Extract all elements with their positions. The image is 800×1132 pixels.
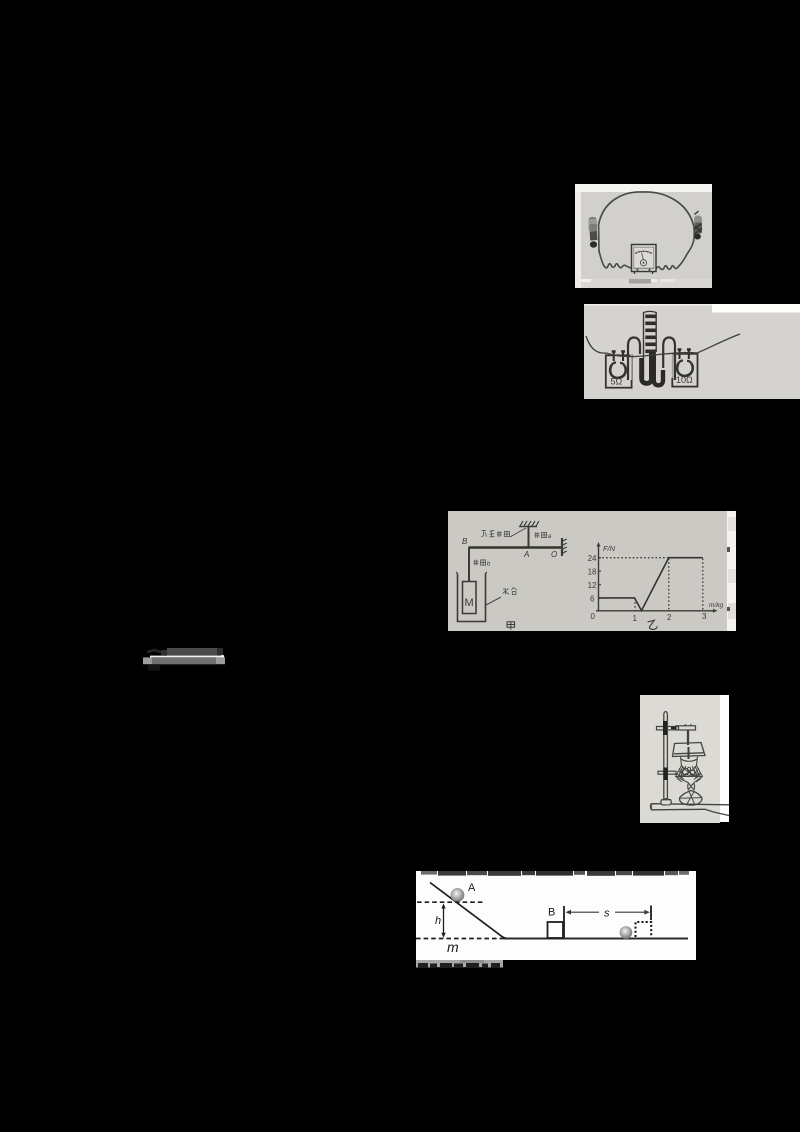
svg-text:2: 2: [667, 613, 672, 622]
svg-text:B: B: [548, 907, 555, 919]
svg-text:0: 0: [591, 612, 596, 621]
svg-text:A: A: [468, 882, 476, 894]
svg-text:B: B: [462, 537, 468, 546]
svg-text:10Ω: 10Ω: [676, 375, 693, 385]
svg-text:3: 3: [702, 612, 707, 621]
svg-text:5Ω: 5Ω: [611, 377, 623, 387]
svg-text:m: m: [447, 939, 459, 955]
svg-text:18: 18: [588, 568, 597, 577]
svg-text:12: 12: [588, 581, 597, 590]
svg-text:O: O: [551, 550, 557, 559]
svg-text:h: h: [435, 915, 441, 927]
svg-text:s: s: [604, 908, 610, 920]
svg-text:1: 1: [633, 614, 638, 623]
svg-text:A: A: [523, 550, 529, 559]
svg-text:m/kg: m/kg: [709, 602, 723, 609]
svg-text:b: b: [487, 561, 491, 568]
svg-text:M: M: [465, 597, 474, 609]
svg-text:a: a: [548, 533, 552, 540]
svg-text:6: 6: [590, 595, 595, 604]
svg-text:24: 24: [588, 554, 597, 563]
svg-text:F/N: F/N: [603, 544, 616, 553]
